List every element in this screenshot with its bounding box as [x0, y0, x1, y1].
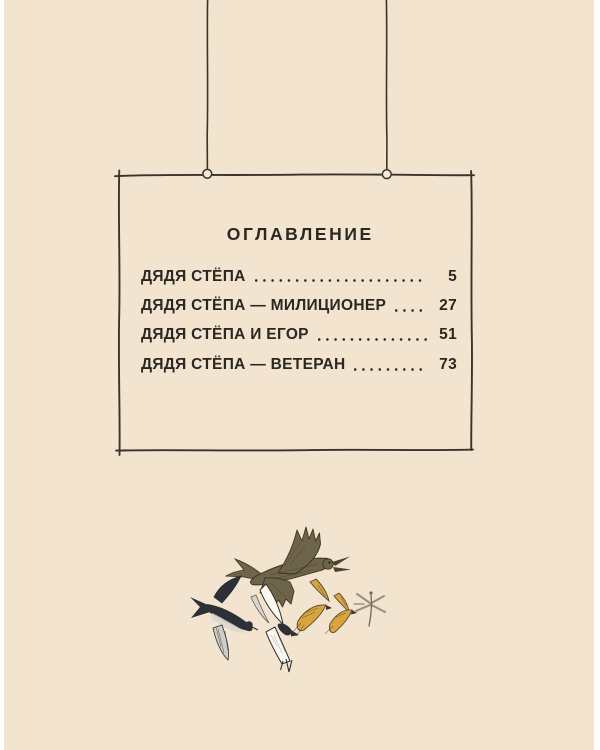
- birds-illustration: [178, 513, 442, 675]
- toc-entry-page-number: 73: [435, 357, 457, 373]
- toc-entry-label: ДЯДЯ СТЁПА — МИЛИЦИОНЕР: [141, 298, 386, 314]
- book-page-photo: { "toc": { "title": "ОГЛАВЛЕНИЕ", "entri…: [0, 0, 600, 750]
- toc-entry: ДЯДЯ СТЁПА И ЕГОР 51: [141, 320, 457, 349]
- toc-entry: ДЯДЯ СТЁПА 5: [141, 261, 457, 290]
- table-of-contents: ОГЛАВЛЕНИЕ ДЯДЯ СТЁПА 5 ДЯДЯ СТЁПА — МИЛ…: [119, 174, 472, 451]
- martin-bird: [190, 576, 258, 660]
- toc-entry: ДЯДЯ СТЁПА — ВЕТЕРАН 73: [141, 349, 457, 378]
- dot-leader: [354, 368, 427, 371]
- toc-title: ОГЛАВЛЕНИЕ: [141, 224, 457, 244]
- dot-leader: [318, 338, 427, 341]
- toc-entry-page-number: 51: [435, 327, 457, 343]
- toc-entry-label: ДЯДЯ СТЁПА: [141, 269, 246, 285]
- toc-entry-label: ДЯДЯ СТЁПА — ВЕТЕРАН: [141, 357, 345, 373]
- dot-leader: [395, 309, 427, 312]
- dragonfly: [354, 591, 385, 626]
- toc-entry-label: ДЯДЯ СТЁПА И ЕГОР: [141, 327, 309, 343]
- hanging-string-right: [386, 0, 387, 169]
- golden-bird-small: [325, 593, 357, 634]
- toc-entry: ДЯДЯ СТЁПА — МИЛИЦИОНЕР 27: [141, 290, 457, 319]
- hawk-bird: [226, 527, 351, 607]
- toc-entry-page-number: 27: [435, 298, 457, 314]
- golden-bird-large: [291, 579, 332, 636]
- dot-leader: [255, 279, 427, 282]
- toc-entry-page-number: 5: [435, 269, 457, 285]
